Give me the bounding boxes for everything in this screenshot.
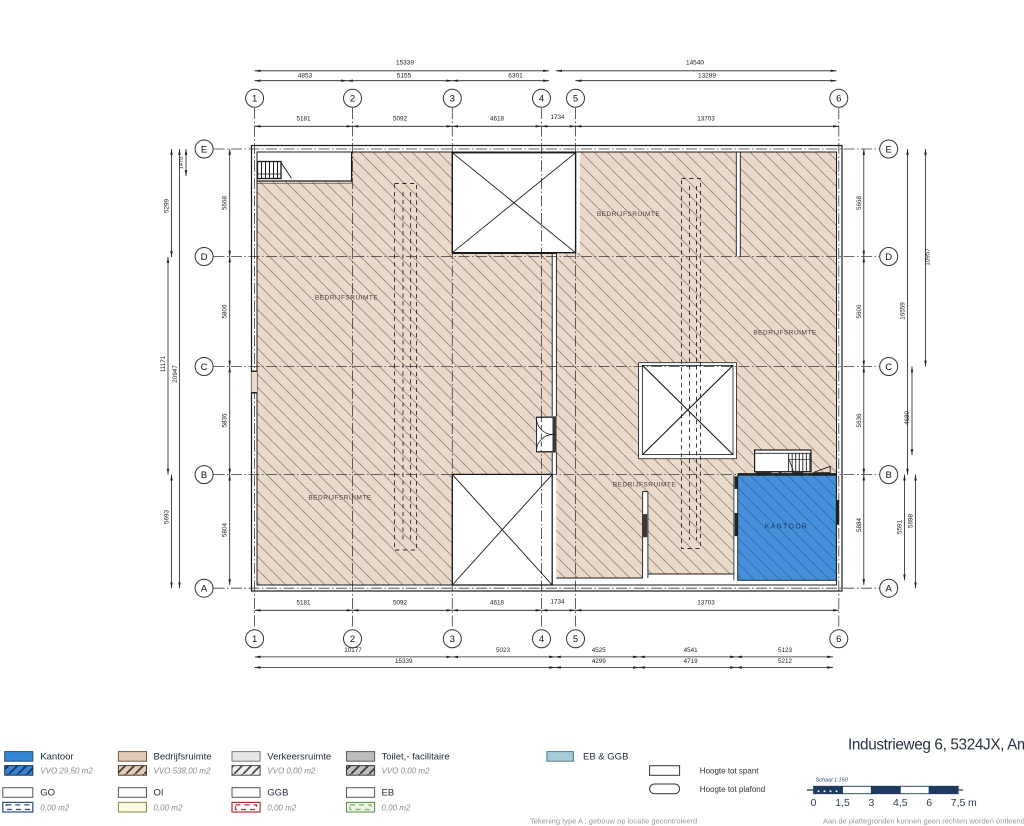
svg-text:VVO 29,50 m2: VVO 29,50 m2 xyxy=(40,767,93,776)
svg-text:VVO 0,00 m2: VVO 0,00 m2 xyxy=(382,767,431,776)
svg-text:Kantoor: Kantoor xyxy=(40,752,73,763)
svg-text:20947: 20947 xyxy=(172,365,179,383)
svg-text:Verkeersruimte: Verkeersruimte xyxy=(267,752,331,763)
svg-text:5698: 5698 xyxy=(908,514,915,529)
svg-text:OI: OI xyxy=(154,788,164,799)
svg-text:EB & GGB: EB & GGB xyxy=(583,752,628,763)
svg-text:6301: 6301 xyxy=(508,72,523,79)
svg-text:4853: 4853 xyxy=(298,72,313,79)
svg-text:5123: 5123 xyxy=(778,647,793,654)
svg-text:Hoogte tot plafond: Hoogte tot plafond xyxy=(700,785,765,794)
svg-text:14540: 14540 xyxy=(686,60,704,67)
svg-text:10957: 10957 xyxy=(925,248,932,266)
svg-text:1: 1 xyxy=(252,634,257,645)
svg-text:4: 4 xyxy=(539,634,544,645)
svg-text:5636: 5636 xyxy=(856,413,863,428)
svg-text:11171: 11171 xyxy=(160,355,167,372)
svg-text:1734: 1734 xyxy=(550,114,565,121)
svg-text:4719: 4719 xyxy=(684,658,699,665)
svg-text:6: 6 xyxy=(836,94,841,105)
svg-text:5155: 5155 xyxy=(397,72,412,79)
svg-text:0,00 m2: 0,00 m2 xyxy=(154,803,183,812)
svg-text:4618: 4618 xyxy=(490,115,505,122)
svg-text:3: 3 xyxy=(450,94,455,105)
svg-text:6: 6 xyxy=(836,634,841,645)
svg-text:4525: 4525 xyxy=(592,647,607,654)
svg-text:5591: 5591 xyxy=(897,520,904,535)
svg-text:0,00 m2: 0,00 m2 xyxy=(267,803,296,812)
svg-text:2: 2 xyxy=(350,94,355,105)
svg-text:BEDRIJFSRUIMTE: BEDRIJFSRUIMTE xyxy=(597,211,661,218)
svg-text:BEDRIJFSRUIMTE: BEDRIJFSRUIMTE xyxy=(315,295,379,302)
svg-text:15339: 15339 xyxy=(395,658,413,665)
svg-text:B: B xyxy=(201,470,207,481)
svg-text:VVO 0,00 m2: VVO 0,00 m2 xyxy=(267,767,316,776)
svg-text:13289: 13289 xyxy=(698,72,716,79)
svg-text:GGB: GGB xyxy=(267,788,288,799)
svg-text:0,00 m2: 0,00 m2 xyxy=(382,803,411,812)
svg-text:5668: 5668 xyxy=(856,196,863,211)
svg-text:3: 3 xyxy=(450,634,455,645)
svg-text:Industrieweg 6, 5324JX, Amster: Industrieweg 6, 5324JX, Amsterd xyxy=(848,737,1024,754)
svg-text:BEDRIJFSRUIMTE: BEDRIJFSRUIMTE xyxy=(753,330,817,337)
svg-text:m: m xyxy=(968,797,977,809)
svg-text:6: 6 xyxy=(926,797,932,809)
svg-text:Hoogte tot spant: Hoogte tot spant xyxy=(700,767,759,776)
svg-text:5181: 5181 xyxy=(296,600,311,607)
svg-text:5884: 5884 xyxy=(856,518,863,533)
svg-text:5023: 5023 xyxy=(496,647,511,654)
svg-text:5212: 5212 xyxy=(778,658,793,665)
svg-text:7,5: 7,5 xyxy=(951,797,966,809)
svg-text:4680: 4680 xyxy=(904,411,911,426)
svg-text:D: D xyxy=(885,252,892,263)
svg-text:15339: 15339 xyxy=(396,60,414,67)
svg-text:4: 4 xyxy=(539,94,544,105)
svg-text:5606: 5606 xyxy=(856,304,863,319)
svg-text:5836: 5836 xyxy=(222,413,229,428)
svg-text:0,00 m2: 0,00 m2 xyxy=(40,803,69,812)
svg-text:B: B xyxy=(886,470,892,481)
svg-text:5092: 5092 xyxy=(393,115,408,122)
svg-text:2: 2 xyxy=(350,634,355,645)
svg-text:5: 5 xyxy=(573,634,578,645)
svg-text:5181: 5181 xyxy=(296,115,311,122)
svg-text:5299: 5299 xyxy=(164,199,171,214)
svg-text:4541: 4541 xyxy=(684,647,699,654)
svg-text:16559: 16559 xyxy=(900,302,907,320)
svg-text:5693: 5693 xyxy=(164,510,171,525)
svg-text:Bedrijfsruimte: Bedrijfsruimte xyxy=(154,752,212,763)
svg-text:5804: 5804 xyxy=(222,523,229,538)
svg-text:Aan de plattegronden kunnen ge: Aan de plattegronden kunnen geen rechten… xyxy=(823,817,1024,826)
svg-text:5806: 5806 xyxy=(222,304,229,319)
svg-text:A: A xyxy=(201,584,208,595)
svg-text:BEDRIJFSRUIMTE: BEDRIJFSRUIMTE xyxy=(308,495,372,502)
svg-text:13703: 13703 xyxy=(697,600,715,607)
svg-text:4299: 4299 xyxy=(592,658,607,665)
svg-text:D: D xyxy=(201,252,208,263)
svg-text:Tekening type A : gebouw op lo: Tekening type A : gebouw op locatie geco… xyxy=(530,817,697,826)
svg-text:5: 5 xyxy=(573,94,578,105)
svg-text:Toilet,- facilitaire: Toilet,- facilitaire xyxy=(382,752,450,763)
svg-text:0: 0 xyxy=(811,797,817,809)
svg-text:EB: EB xyxy=(382,788,395,799)
svg-text:C: C xyxy=(201,362,208,373)
svg-text:C: C xyxy=(885,362,892,373)
svg-text:3: 3 xyxy=(868,797,874,809)
svg-text:4,5: 4,5 xyxy=(893,797,908,809)
svg-text:E: E xyxy=(201,144,207,155)
svg-text:BEDRIJFSRUIMTE: BEDRIJFSRUIMTE xyxy=(613,482,677,489)
svg-text:1734: 1734 xyxy=(550,598,565,605)
svg-text:VVO 538,00 m2: VVO 538,00 m2 xyxy=(154,767,211,776)
svg-text:5668: 5668 xyxy=(222,196,229,211)
svg-text:A: A xyxy=(886,584,893,595)
svg-text:5092: 5092 xyxy=(393,600,408,607)
svg-text:13703: 13703 xyxy=(697,115,715,122)
svg-text:E: E xyxy=(886,144,892,155)
svg-text:4618: 4618 xyxy=(490,600,505,607)
svg-text:1: 1 xyxy=(252,94,257,105)
svg-text:KANTOOR: KANTOOR xyxy=(765,524,809,531)
svg-text:GO: GO xyxy=(40,788,55,799)
svg-text:1,5: 1,5 xyxy=(835,797,850,809)
svg-text:Schaal 1:150: Schaal 1:150 xyxy=(816,778,849,784)
